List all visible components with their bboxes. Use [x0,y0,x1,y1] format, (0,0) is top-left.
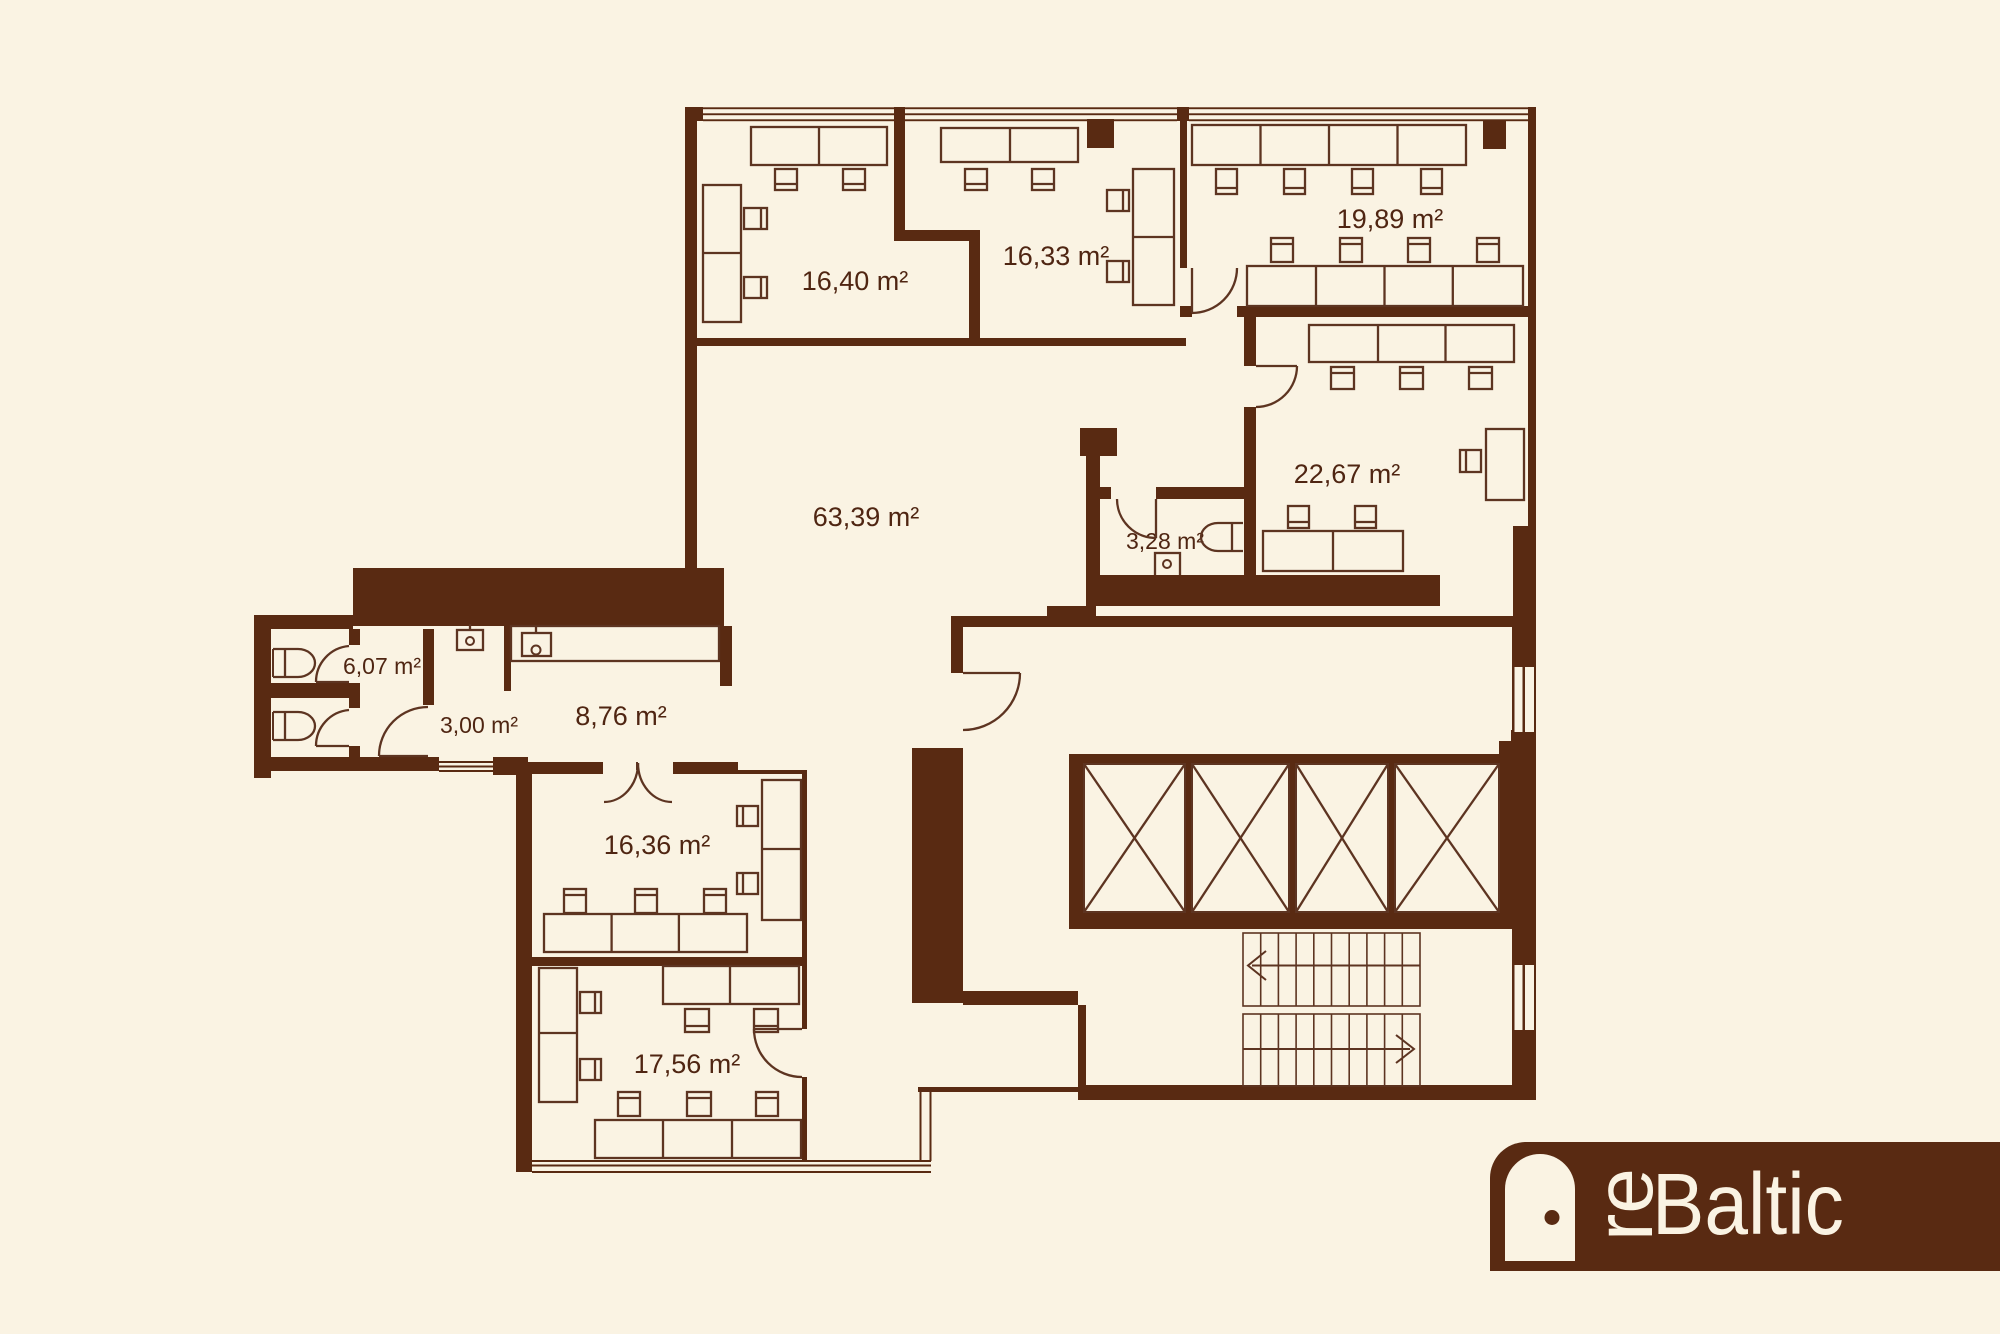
svg-text:63,39 m²: 63,39 m² [813,502,920,532]
svg-text:16,33 m²: 16,33 m² [1003,241,1110,271]
svg-text:22,67 m²: 22,67 m² [1294,459,1401,489]
svg-text:8,76 m²: 8,76 m² [575,701,667,731]
svg-text:16,40 m²: 16,40 m² [802,266,909,296]
svg-text:6,07 m²: 6,07 m² [343,653,421,679]
svg-text:17,56 m²: 17,56 m² [634,1049,741,1079]
svg-text:3,28 m²: 3,28 m² [1126,528,1204,554]
svg-text:3,00 m²: 3,00 m² [440,712,518,738]
svg-text:19,89 m²: 19,89 m² [1337,204,1444,234]
svg-text:16,36 m²: 16,36 m² [604,830,711,860]
svg-text:Baltic: Baltic [1652,1155,1844,1253]
